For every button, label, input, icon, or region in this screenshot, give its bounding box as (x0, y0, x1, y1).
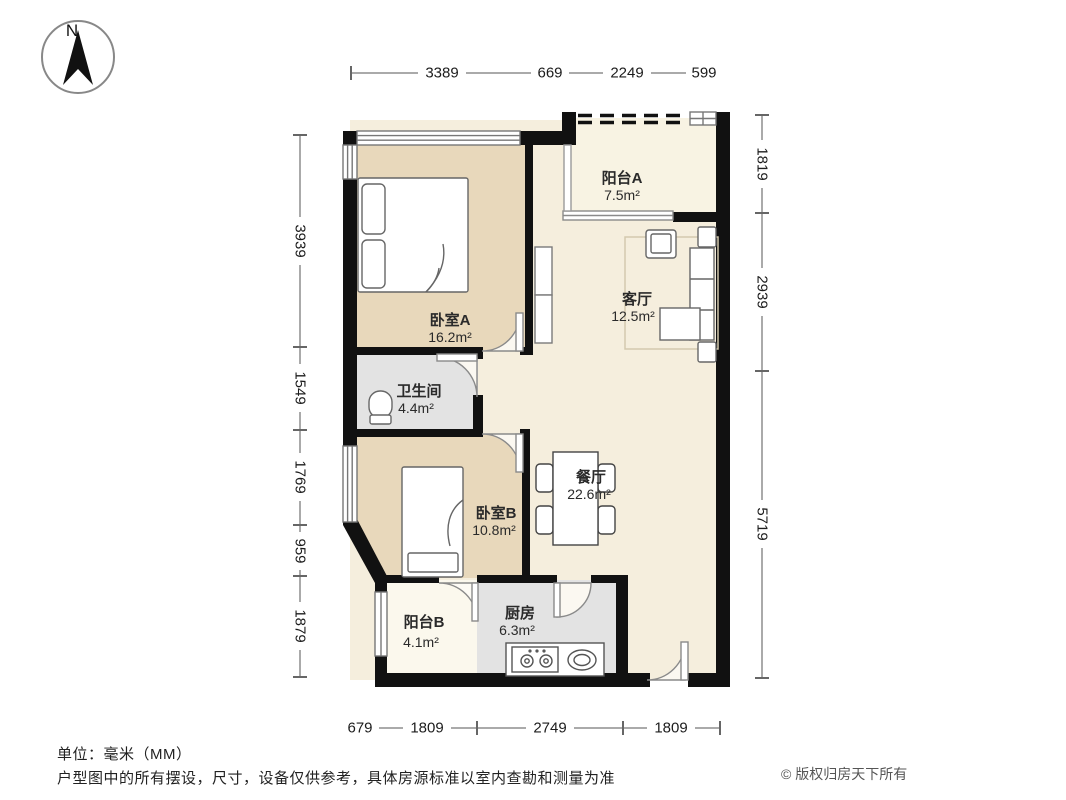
wall-segment (343, 429, 482, 437)
dimension-right: 1819 2939 5719 (754, 115, 772, 678)
dim-value: 3389 (425, 65, 458, 82)
window-balcony-b-left (375, 592, 387, 656)
dimension-left: 3939 1549 1769 959 1879 (292, 135, 310, 677)
window-balcony-a-corner (690, 112, 716, 125)
label-balcony-a: 阳台A 7.5m² (602, 169, 643, 203)
dim-value: 2749 (533, 720, 566, 737)
floor-plan-canvas: N (0, 0, 1066, 800)
dim-value: 5719 (754, 507, 771, 540)
wall-segment (716, 112, 730, 687)
wall-segment (562, 112, 576, 145)
armchair (646, 230, 676, 258)
toilet (369, 391, 392, 424)
dim-value: 2249 (610, 65, 643, 82)
single-bed (402, 467, 463, 577)
dimension-top: 3389 669 2249 599 (351, 64, 722, 82)
window-bedroom-b-left (343, 446, 357, 522)
svg-text:22.6m²: 22.6m² (567, 486, 611, 502)
unit-note: 单位：毫米（MM） (57, 743, 192, 764)
svg-text:卫生间: 卫生间 (396, 382, 441, 400)
svg-text:7.5m²: 7.5m² (604, 187, 640, 203)
coffee-table (660, 308, 700, 340)
label-kitchen: 厨房 6.3m² (499, 604, 535, 638)
svg-text:6.3m²: 6.3m² (499, 622, 535, 638)
dim-value: 599 (691, 65, 716, 82)
dim-value: 679 (347, 720, 372, 737)
wall-segment (525, 131, 533, 355)
dim-value: 959 (292, 538, 309, 563)
svg-text:阳台B: 阳台B (404, 613, 445, 631)
dim-value: 3939 (292, 224, 309, 257)
wall-segment (616, 575, 628, 687)
svg-text:16.2m²: 16.2m² (428, 329, 472, 345)
balcony-a-floor (568, 118, 718, 215)
label-bedroom-b: 卧室B 10.8m² (472, 504, 516, 538)
svg-text:卧室B: 卧室B (476, 504, 517, 522)
label-bedroom-a: 卧室A 16.2m² (428, 311, 472, 345)
dim-value: 1819 (754, 147, 771, 180)
svg-text:餐厅: 餐厅 (576, 468, 606, 486)
wall-segment (688, 673, 730, 687)
dim-value: 669 (537, 65, 562, 82)
wall-segment (673, 212, 730, 222)
wall-segment (477, 575, 557, 583)
svg-text:4.1m²: 4.1m² (403, 634, 439, 650)
svg-text:客厅: 客厅 (621, 290, 652, 308)
disclaimer-text: 户型图中的所有摆设，尺寸，设备仅供参考，具体房源标准以室内查勘和测量为准 (57, 767, 615, 788)
double-bed (358, 178, 468, 292)
window-bedroom-a-top (357, 131, 520, 145)
dim-value: 1809 (410, 720, 443, 737)
dimension-bottom: 679 1809 2749 1809 (342, 719, 720, 737)
copyright-text: © 版权归房天下所有 (781, 764, 907, 784)
svg-text:12.5m²: 12.5m² (611, 308, 655, 324)
dim-value: 1549 (292, 371, 309, 404)
dim-value: 1769 (292, 460, 309, 493)
window-bedroom-a-left (343, 145, 357, 179)
svg-text:4.4m²: 4.4m² (398, 400, 434, 416)
window-balcony-a-side (564, 145, 571, 211)
tv-cabinet (535, 247, 552, 343)
dim-value: 2939 (754, 275, 771, 308)
compass: N (42, 21, 114, 93)
window-balcony-a-living (563, 211, 673, 220)
svg-text:阳台A: 阳台A (602, 169, 643, 187)
kitchen-counter (506, 643, 604, 676)
dim-value: 1809 (654, 720, 687, 737)
svg-text:厨房: 厨房 (505, 604, 535, 622)
svg-text:10.8m²: 10.8m² (472, 522, 516, 538)
dim-value: 1879 (292, 609, 309, 642)
svg-text:卧室A: 卧室A (430, 311, 471, 329)
